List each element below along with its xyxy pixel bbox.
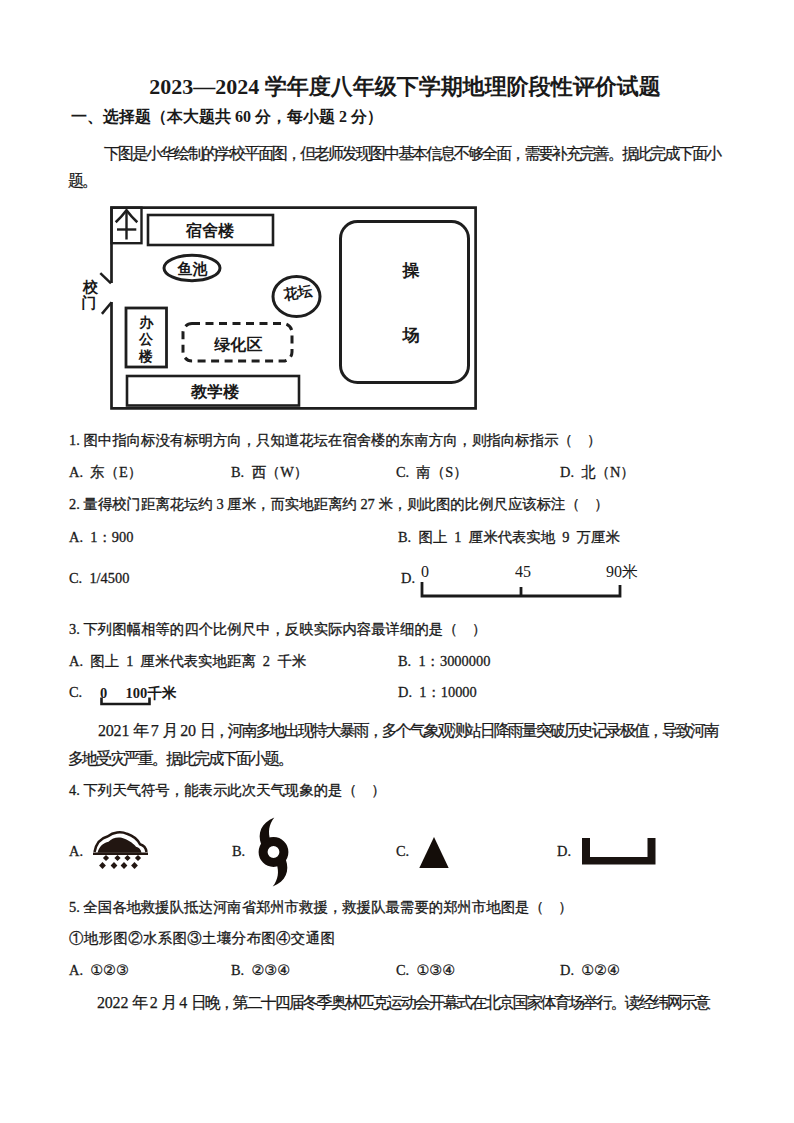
svg-text:鱼池: 鱼池 xyxy=(177,260,208,277)
svg-text:场: 场 xyxy=(402,326,420,345)
svg-text:花坛: 花坛 xyxy=(281,282,314,303)
svg-text:公: 公 xyxy=(138,331,154,347)
svg-text:100千米: 100千米 xyxy=(126,685,177,701)
svg-text:0: 0 xyxy=(421,563,429,580)
svg-text:楼: 楼 xyxy=(138,348,153,364)
svg-text:绿化区: 绿化区 xyxy=(214,336,263,353)
svg-text:90米: 90米 xyxy=(606,563,638,580)
svg-text:门: 门 xyxy=(82,294,97,311)
svg-text:操: 操 xyxy=(402,261,421,280)
svg-text:教学楼: 教学楼 xyxy=(190,383,240,400)
svg-text:45: 45 xyxy=(515,563,531,580)
svg-text:校: 校 xyxy=(82,278,99,295)
svg-text:办: 办 xyxy=(138,314,154,330)
svg-text:宿舍楼: 宿舍楼 xyxy=(185,221,235,239)
